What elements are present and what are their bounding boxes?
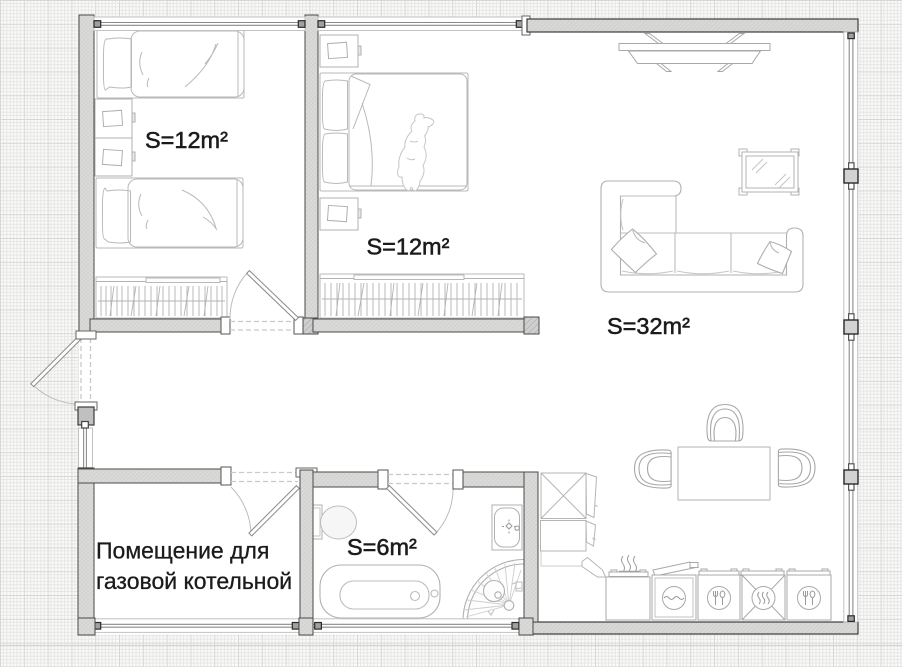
svg-text:S=6m²: S=6m² <box>347 534 417 560</box>
svg-text:газовой котельной: газовой котельной <box>96 568 292 594</box>
svg-text:Помещение для: Помещение для <box>96 538 269 564</box>
svg-text:S=32m²: S=32m² <box>607 313 690 339</box>
svg-text:S=12m²: S=12m² <box>367 234 450 260</box>
svg-text:S=12m²: S=12m² <box>145 127 228 153</box>
